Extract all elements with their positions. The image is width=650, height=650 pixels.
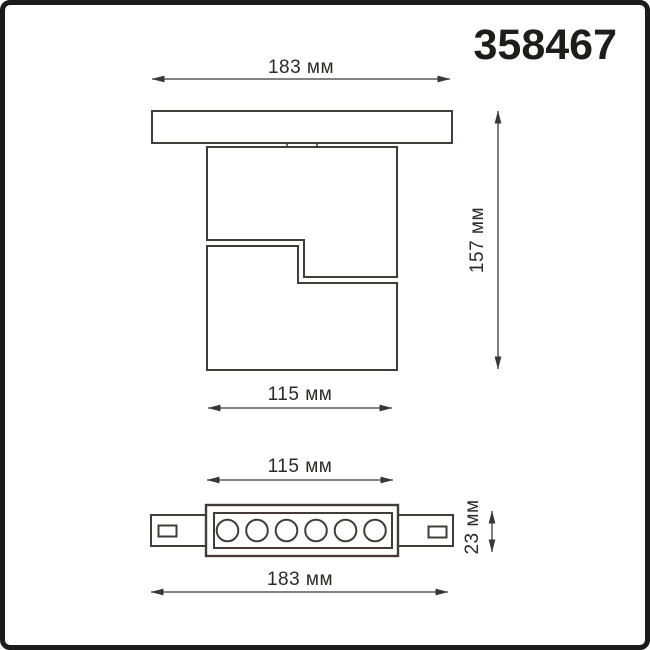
track-slot-left — [159, 526, 177, 537]
led-circle-3 — [276, 520, 298, 542]
dim-label-bottom-183: 183 мм — [267, 569, 333, 590]
track-base-bar — [152, 111, 452, 143]
led-circle-5 — [335, 520, 357, 542]
front-view: 183 мм 115 мм 157 мм — [152, 57, 498, 408]
article-number: 358467 — [474, 21, 618, 69]
dim-label-top-183: 183 мм — [268, 57, 334, 78]
bottom-view: 115 мм 23 мм 183 мм — [151, 456, 492, 592]
led-circle-2 — [246, 520, 268, 542]
track-slot-right — [429, 527, 447, 538]
drawing-page: 183 мм 115 мм 157 мм 115 мм — [0, 0, 650, 650]
technical-drawing: 183 мм 115 мм 157 мм 115 мм — [0, 0, 650, 650]
dim-label-157: 157 мм — [467, 207, 488, 273]
dim-label-bottom-115: 115 мм — [268, 456, 333, 477]
led-circle-6 — [364, 520, 386, 542]
led-circle-4 — [305, 520, 327, 542]
led-circle-1 — [217, 520, 239, 542]
dim-label-23: 23 мм — [462, 499, 483, 554]
dim-label-front-115: 115 мм — [268, 384, 333, 405]
